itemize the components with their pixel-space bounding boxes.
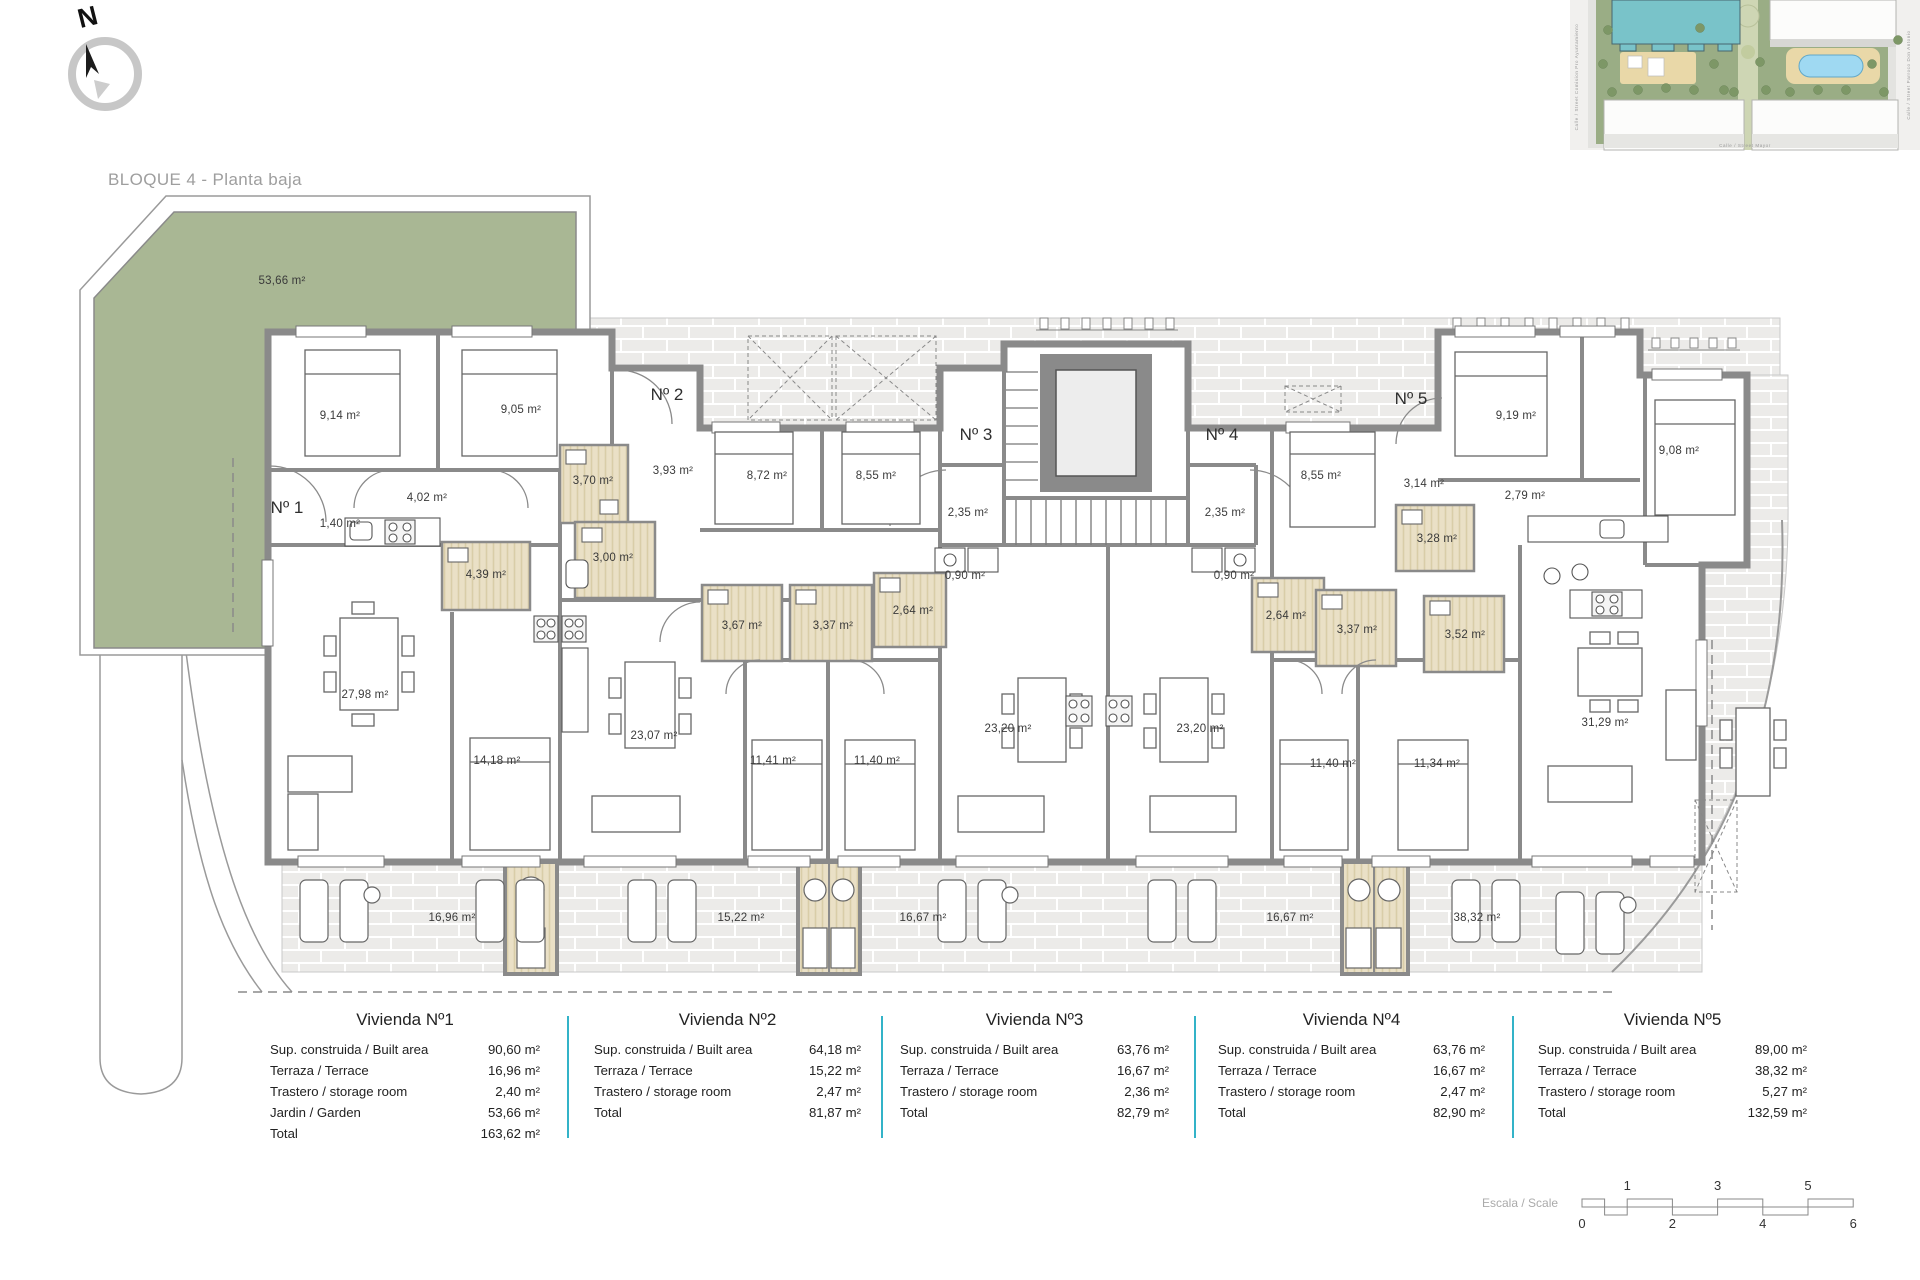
scale-numbers-layer: 1350246 bbox=[0, 0, 1920, 1280]
scale-tick: 3 bbox=[1714, 1178, 1721, 1193]
scale-tick: 1 bbox=[1624, 1178, 1631, 1193]
scale-tick: 0 bbox=[1578, 1216, 1585, 1231]
floorplan-page: Calle / Street Comision Pro Ayuntamiento… bbox=[0, 0, 1920, 1280]
scale-tick: 2 bbox=[1669, 1216, 1676, 1231]
scale-tick: 4 bbox=[1759, 1216, 1766, 1231]
scale-tick: 6 bbox=[1850, 1216, 1857, 1231]
scale-tick: 5 bbox=[1804, 1178, 1811, 1193]
